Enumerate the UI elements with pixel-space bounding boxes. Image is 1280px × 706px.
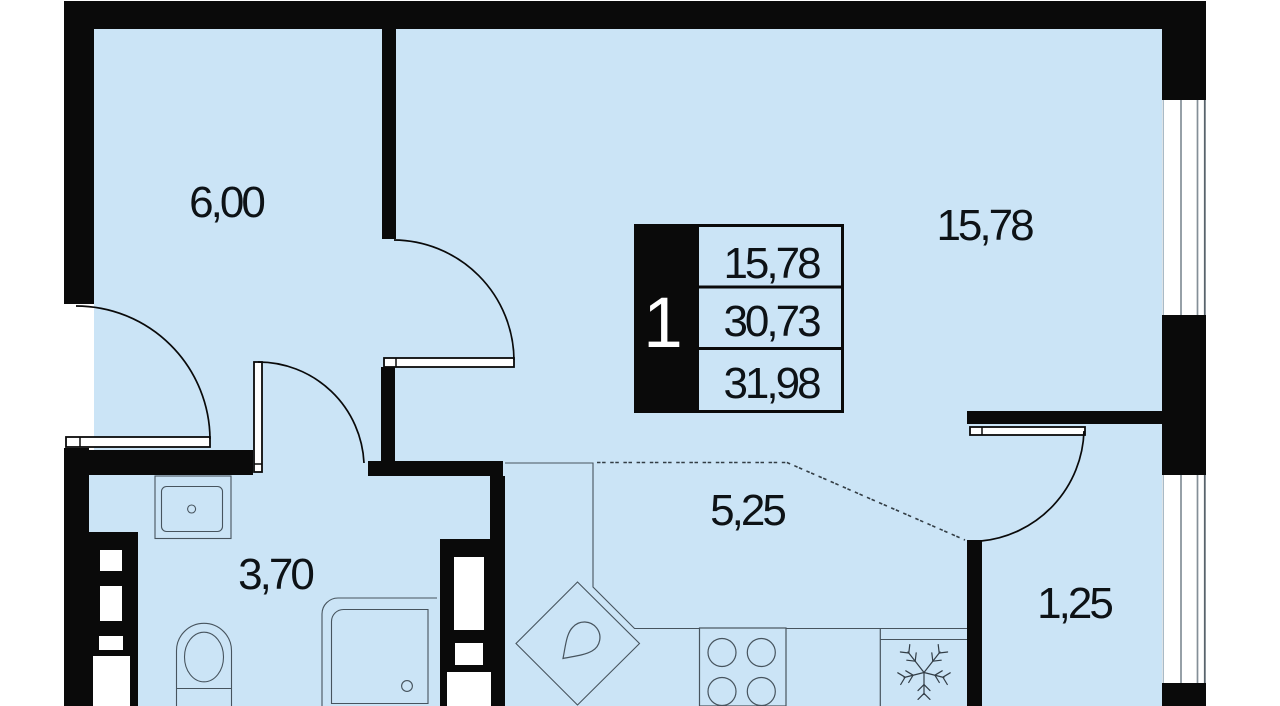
svg-text:1,25: 1,25: [1037, 579, 1112, 628]
svg-text:3,70: 3,70: [238, 550, 313, 599]
svg-text:5,25: 5,25: [710, 486, 785, 535]
svg-text:31,98: 31,98: [723, 359, 820, 408]
svg-text:6,00: 6,00: [189, 178, 264, 227]
svg-text:30,73: 30,73: [723, 297, 820, 346]
svg-text:15,78: 15,78: [936, 201, 1033, 250]
svg-text:15,78: 15,78: [723, 239, 820, 288]
svg-text:1: 1: [643, 284, 683, 363]
